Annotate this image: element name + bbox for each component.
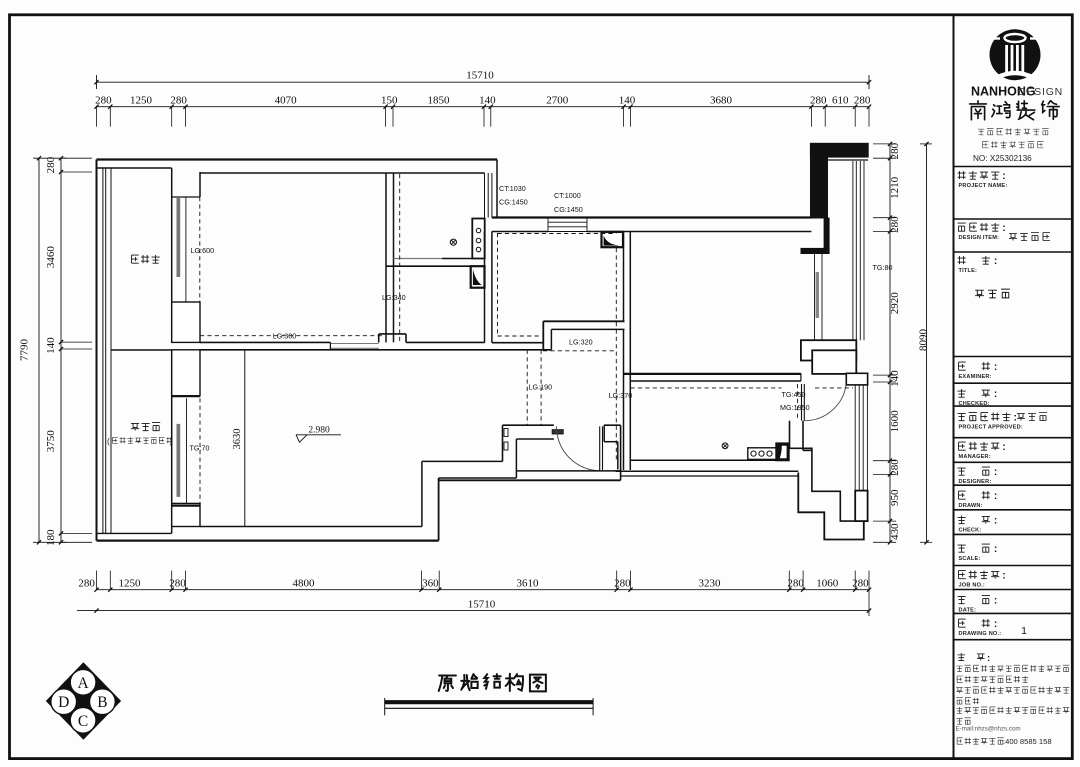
svg-text:DATE:: DATE:: [959, 608, 977, 614]
svg-text:610: 610: [832, 95, 849, 107]
svg-text:280: 280: [854, 95, 871, 107]
svg-text::: :: [994, 516, 997, 527]
svg-text::: :: [994, 596, 997, 607]
svg-text:140: 140: [479, 95, 496, 107]
svg-text:4070: 4070: [275, 95, 298, 107]
svg-text:150: 150: [381, 95, 398, 107]
svg-text::: :: [1002, 171, 1005, 182]
svg-text:LG:190: LG:190: [529, 383, 553, 392]
svg-text:15710: 15710: [468, 599, 496, 611]
svg-text:TG:70: TG:70: [190, 444, 210, 453]
svg-text:CHECKED:: CHECKED:: [959, 401, 990, 407]
svg-text:MANAGER:: MANAGER:: [959, 454, 991, 460]
svg-text:3750: 3750: [45, 430, 57, 453]
svg-text:4800: 4800: [293, 578, 316, 590]
svg-text:CT:1030: CT:1030: [499, 184, 526, 193]
svg-text:3610: 3610: [517, 578, 540, 590]
svg-text:PROJECT APPROVED:: PROJECT APPROVED:: [959, 425, 1023, 431]
svg-text:): ): [170, 437, 173, 446]
svg-text::: :: [1002, 442, 1005, 453]
svg-text::: :: [994, 544, 997, 555]
svg-text:7790: 7790: [19, 339, 31, 362]
svg-text:LG:320: LG:320: [569, 338, 593, 347]
svg-text:15710: 15710: [466, 70, 494, 82]
svg-text:TG:80: TG:80: [873, 263, 893, 272]
svg-text:280: 280: [170, 95, 187, 107]
svg-text:E-mail:nhzs@nhzs.com: E-mail:nhzs@nhzs.com: [956, 726, 1021, 733]
svg-text:PROJECT NAME:: PROJECT NAME:: [959, 183, 1008, 189]
svg-text:180: 180: [45, 529, 57, 546]
svg-text:1250: 1250: [119, 578, 142, 590]
svg-text::: :: [987, 653, 990, 664]
svg-text:2700: 2700: [546, 95, 569, 107]
svg-text:LG:600: LG:600: [191, 246, 215, 255]
svg-text::400 8585 158: :400 8585 158: [1003, 737, 1052, 746]
svg-text::: :: [994, 467, 997, 478]
svg-text:SCALE:: SCALE:: [959, 556, 981, 562]
svg-text::: :: [1002, 223, 1005, 234]
svg-text:280: 280: [78, 578, 95, 590]
svg-text:2920: 2920: [889, 292, 901, 315]
svg-text:140: 140: [45, 337, 57, 354]
svg-text:(: (: [107, 437, 110, 446]
svg-text:280: 280: [889, 216, 901, 233]
svg-text:NO: X25302136: NO: X25302136: [973, 154, 1032, 163]
svg-text:1: 1: [1021, 625, 1027, 637]
svg-text:1060: 1060: [816, 578, 839, 590]
svg-text:8090: 8090: [918, 329, 930, 352]
svg-text:280: 280: [614, 578, 631, 590]
svg-text:280: 280: [852, 578, 869, 590]
svg-text:280: 280: [45, 156, 57, 173]
svg-text:2.980: 2.980: [308, 426, 330, 436]
svg-text:DESIGN: DESIGN: [1018, 86, 1063, 98]
svg-text:B: B: [97, 694, 107, 711]
svg-text:CG:1450: CG:1450: [499, 198, 528, 207]
svg-text:280: 280: [169, 578, 186, 590]
svg-text::: :: [1002, 571, 1005, 582]
svg-text:CT:1000: CT:1000: [554, 191, 581, 200]
svg-text:280: 280: [95, 95, 112, 107]
svg-text:DRAWN:: DRAWN:: [959, 503, 983, 509]
svg-text:CHECK:: CHECK:: [959, 528, 982, 534]
svg-text:430: 430: [889, 523, 901, 540]
svg-text:280: 280: [889, 142, 901, 159]
svg-text:LG:300: LG:300: [273, 332, 297, 341]
svg-text::: :: [1014, 413, 1017, 424]
svg-text::: :: [994, 491, 997, 502]
svg-text:JOB NO.:: JOB NO.:: [959, 583, 985, 589]
svg-text:280: 280: [810, 95, 827, 107]
svg-text:3680: 3680: [710, 95, 733, 107]
svg-text:MG:1950: MG:1950: [780, 403, 810, 412]
svg-text:950: 950: [889, 489, 901, 506]
svg-text:A: A: [77, 675, 89, 692]
svg-text:D: D: [58, 694, 69, 711]
svg-text:TG:450: TG:450: [782, 390, 806, 399]
svg-text:3630: 3630: [232, 429, 243, 450]
svg-text:EXAMINER:: EXAMINER:: [959, 374, 992, 380]
svg-text:360: 360: [422, 578, 439, 590]
svg-text:LG:370: LG:370: [609, 391, 633, 400]
svg-text:1850: 1850: [428, 95, 451, 107]
svg-text::: :: [994, 362, 997, 373]
svg-text::: :: [994, 256, 997, 267]
svg-text:140: 140: [889, 370, 901, 387]
svg-text:1250: 1250: [130, 95, 153, 107]
svg-text:LG:340: LG:340: [382, 293, 406, 302]
svg-text:DRAWING NO.:: DRAWING NO.:: [959, 631, 1002, 637]
svg-text:140: 140: [619, 95, 636, 107]
svg-text:3230: 3230: [699, 578, 722, 590]
svg-text::: :: [994, 389, 997, 400]
svg-text:280: 280: [889, 459, 901, 476]
svg-text:3460: 3460: [45, 246, 57, 269]
svg-text:TITLE:: TITLE:: [959, 268, 978, 274]
svg-text:280: 280: [787, 578, 804, 590]
svg-text:CG:1450: CG:1450: [554, 205, 583, 214]
svg-text:1210: 1210: [889, 176, 901, 199]
svg-text:DESIGN ITEM:: DESIGN ITEM:: [959, 235, 1000, 241]
svg-text::: :: [994, 619, 997, 630]
svg-text:DESIGNER:: DESIGNER:: [959, 479, 992, 485]
svg-text:1600: 1600: [889, 410, 901, 433]
svg-text:C: C: [78, 713, 88, 730]
